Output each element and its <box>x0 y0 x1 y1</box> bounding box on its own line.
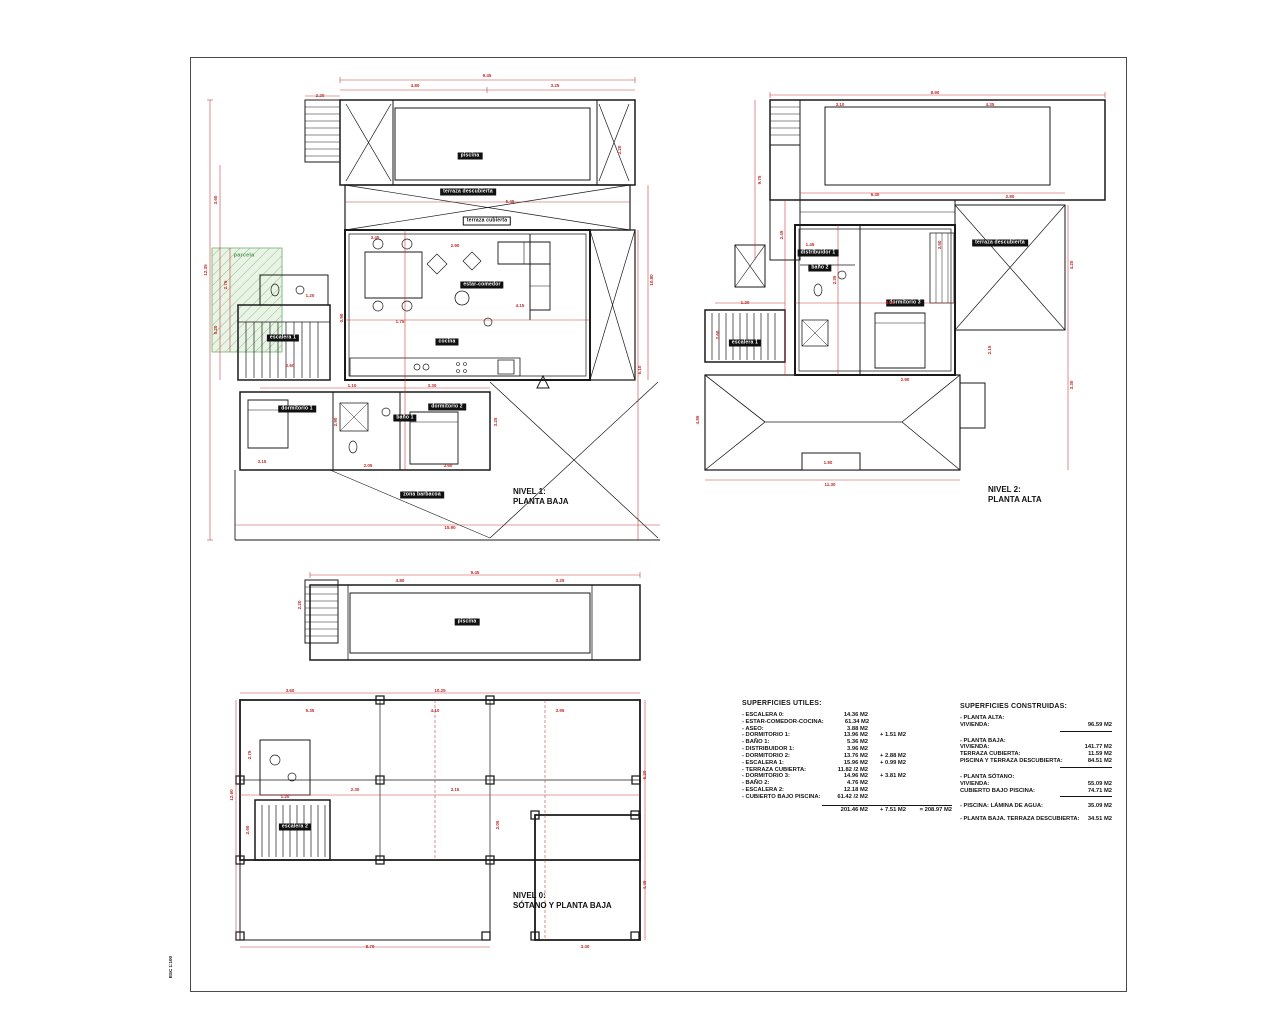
dimension-label: 2.60 <box>716 331 721 340</box>
construidas-group: - PISCINA: LÁMINA DE AGUA:35.09 M2 <box>960 803 1112 810</box>
dimension-label: 3.15 <box>258 460 267 465</box>
dimension-label: 2.20 <box>618 146 623 155</box>
sum-divider-line <box>1060 730 1112 732</box>
dimension-label: 4.10 <box>431 709 440 714</box>
dimension-label: 5.20 <box>214 326 219 335</box>
dimension-label: 2.90 <box>451 244 460 249</box>
dimension-label: 1.20 <box>281 795 290 800</box>
dimension-label: 2.60 <box>286 364 295 369</box>
dimension-label: 3.50 <box>938 241 943 250</box>
superficies-construidas-groups: - PLANTA ALTA:VIVIENDA:96.59 M2- PLANTA … <box>960 715 1112 823</box>
dimension-label: 2.05 <box>364 464 373 469</box>
utiles-row: - CUBIERTO BAJO PISCINA:61.42 /2 M2 <box>742 794 952 801</box>
utiles-row: - DISTRIBUIDOR 1:3.96 M2 <box>742 746 952 753</box>
construidas-row: TERRAZA CUBIERTA:11.59 M2 <box>960 751 1112 758</box>
dimension-label: 3.25 <box>494 418 499 427</box>
room-tag: piscina <box>458 153 483 160</box>
dimension-label: 4.15 <box>516 304 525 309</box>
dimension-label: 4.80 <box>396 579 405 584</box>
dimension-label: 1.80 <box>824 461 833 466</box>
dimension-label: 2.75 <box>248 751 253 760</box>
construidas-group-header: - PLANTA ALTA: <box>960 715 1112 722</box>
room-tag: estar-comedor <box>460 282 503 289</box>
construidas-row: - PLANTA BAJA. TERRAZA DESCUBIERTA:34.51… <box>960 816 1112 823</box>
dimension-label: 3.25 <box>551 84 560 89</box>
dimension-label: 3.60 <box>214 196 219 205</box>
superficies-utiles-title: SUPERFICIES UTILES: <box>742 700 952 707</box>
dimension-label: 12.60 <box>230 789 235 800</box>
room-tag: terraza descubierta <box>972 240 1028 247</box>
construidas-row: PISCINA Y TERRAZA DESCUBIERTA:84.51 M2 <box>960 758 1112 765</box>
dimension-label: 2.20 <box>316 94 325 99</box>
dimension-label: 2.30 <box>351 788 360 793</box>
room-tag: escalera 2 <box>279 824 311 831</box>
dimension-label: 1.45 <box>806 243 815 248</box>
room-tag: escalera 1 <box>267 335 299 342</box>
dimension-label: 10.80 <box>650 274 655 285</box>
dimension-label: 2.75 <box>224 281 229 290</box>
room-tag: terraza descubierta <box>440 189 496 196</box>
dimension-label: 2.05 <box>496 821 501 830</box>
dimension-label: 3.40 <box>581 945 590 950</box>
room-tag: parcela <box>234 253 255 259</box>
construidas-group-header: - PLANTA SÓTANO: <box>960 774 1112 781</box>
dimension-label: 6.10 <box>638 366 643 375</box>
dimension-label: 9.75 <box>758 176 763 185</box>
dimension-label: 2.45 <box>780 231 785 240</box>
construidas-group: - PLANTA BAJA. TERRAZA DESCUBIERTA:34.51… <box>960 816 1112 823</box>
dimension-label: 8.70 <box>366 945 375 950</box>
dimension-label: 10.25 <box>434 689 445 694</box>
dimension-label: 3.15 <box>451 788 460 793</box>
dimension-label: 3.05 <box>886 301 895 306</box>
dimension-label: 3.25 <box>556 579 565 584</box>
plot-stamp-text: ESC 1:100 <box>168 956 173 978</box>
dimension-label: 4.85 <box>696 416 701 425</box>
dimension-label: 6.40 <box>871 193 880 198</box>
room-tag: cocina <box>435 339 458 346</box>
construidas-row: VIVIENDA:96.59 M2 <box>960 722 1112 729</box>
construidas-group: - PLANTA SÓTANO:VIVIENDA:55.09 M2CUBIERT… <box>960 774 1112 797</box>
floor-plan-nivel-0: piscinaescalera 29.452.204.803.2510.253.… <box>230 565 650 955</box>
construidas-row: VIVIENDA:141.77 M2 <box>960 744 1112 751</box>
utiles-row: - ESCALERA 1:15.96 M2+ 0.99 M2 <box>742 760 952 767</box>
dimension-label: 15.90 <box>444 526 455 531</box>
room-tag: escalera 1 <box>729 340 761 347</box>
superficies-construidas-table: SUPERFICIES CONSTRUIDAS: - PLANTA ALTA:V… <box>960 703 1112 829</box>
dimension-label: 4.45 <box>643 881 648 890</box>
plan1-overlay: piscinaterraza descubiertaterraza cubier… <box>200 70 680 550</box>
construidas-group: - PLANTA BAJA:VIVIENDA:141.77 M2TERRAZA … <box>960 738 1112 768</box>
construidas-row: VIVIENDA:55.09 M2 <box>960 781 1112 788</box>
utiles-row: - DORMITORIO 1:13.96 M2+ 1.51 M2 <box>742 732 952 739</box>
dimension-label: 1.75 <box>396 320 405 325</box>
dimension-label: 3.30 <box>1070 381 1075 390</box>
utiles-row: - TERRAZA CUBIERTA:11.82 /2 M2 <box>742 767 952 774</box>
floor-plan-nivel-1: piscinaterraza descubiertaterraza cubier… <box>200 70 680 550</box>
dimension-label: 8.90 <box>931 91 940 96</box>
room-tag: distribuidor 1 <box>798 250 839 257</box>
superficies-utiles-rows: - ESCALERA 0:14.36 M2- ESTAR-COMEDOR-COC… <box>742 712 952 814</box>
plan-title: NIVEL 2: PLANTA ALTA <box>988 485 1042 504</box>
sum-divider-line <box>1060 795 1112 797</box>
dimension-label: 2.90 <box>334 418 339 427</box>
dimension-label: 1.20 <box>741 301 750 306</box>
plan2-overlay: terraza descubiertadormitorio 3baño 2dis… <box>690 85 1120 525</box>
dimension-label: 4.20 <box>1070 261 1075 270</box>
construidas-row: - PISCINA: LÁMINA DE AGUA:35.09 M2 <box>960 803 1112 810</box>
dimension-label: 2.80 <box>1006 195 1015 200</box>
utiles-row: - ESCALERA 0:14.36 M2 <box>742 712 952 719</box>
room-tag: dormitorio 1 <box>278 406 316 413</box>
superficies-utiles-table: SUPERFICIES UTILES: - ESCALERA 0:14.36 M… <box>742 700 952 814</box>
dimension-label: 4.80 <box>411 84 420 89</box>
dimension-label: 5.35 <box>306 709 315 714</box>
dimension-label: 1.20 <box>306 294 315 299</box>
dimension-label: 2.60 <box>246 826 251 835</box>
dimension-label: 3.95 <box>556 709 565 714</box>
utiles-row: - ESTAR-COMEDOR-COCINA:61.34 M2 <box>742 719 952 726</box>
utiles-row: - BAÑO 2:4.76 M2 <box>742 780 952 787</box>
dimension-label: 1.10 <box>348 384 357 389</box>
dimension-label: 2.35 <box>833 276 838 285</box>
dimension-label: 4.35 <box>986 103 995 108</box>
room-tag: terraza cubierta <box>463 217 511 226</box>
plan-title: NIVEL 1: PLANTA BAJA <box>513 487 569 506</box>
drawing-sheet: ESC 1:100 <box>0 0 1280 1024</box>
utiles-row: - ESCALERA 2:12.18 M2 <box>742 787 952 794</box>
room-tag: piscina <box>455 619 480 626</box>
dimension-label: 3.10 <box>836 103 845 108</box>
sum-divider-line <box>1060 766 1112 768</box>
dimension-label: 3.60 <box>286 689 295 694</box>
dimension-label: 11.30 <box>824 483 835 488</box>
dimension-label: 12.35 <box>204 264 209 275</box>
construidas-group-header: - PLANTA BAJA: <box>960 738 1112 745</box>
floor-plan-nivel-2: terraza descubiertadormitorio 3baño 2dis… <box>690 85 1120 525</box>
plan3-overlay: piscinaescalera 29.452.204.803.2510.253.… <box>230 565 650 955</box>
construidas-row: CUBIERTO BAJO PISCINA:74.71 M2 <box>960 788 1112 795</box>
dimension-label: 2.90 <box>901 378 910 383</box>
plan-title: NIVEL 0: SÓTANO Y PLANTA BAJA <box>513 891 612 910</box>
dimension-label: 5.45 <box>506 200 515 205</box>
room-tag: dormitorio 2 <box>428 404 466 411</box>
utiles-row: - DORMITORIO 3:14.96 M2+ 3.81 M2 <box>742 773 952 780</box>
dimension-label: 2.15 <box>988 346 993 355</box>
dimension-label: 3.30 <box>428 384 437 389</box>
utiles-row: - DORMITORIO 2:13.76 M2+ 2.88 M2 <box>742 753 952 760</box>
room-tag: zona barbacoa <box>400 492 444 499</box>
room-tag: baño 2 <box>808 265 831 272</box>
utiles-totals-row: 201.46 M2+ 7.51 M2= 208.97 M2 <box>742 805 952 814</box>
utiles-row: - BAÑO 1:5.36 M2 <box>742 739 952 746</box>
superficies-construidas-title: SUPERFICIES CONSTRUIDAS: <box>960 703 1112 710</box>
dimension-label: 6.20 <box>643 771 648 780</box>
room-tag: baño 1 <box>393 415 416 422</box>
dimension-label: 3.45 <box>371 236 380 241</box>
dimension-label: 3.60 <box>444 464 453 469</box>
construidas-group: - PLANTA ALTA:VIVIENDA:96.59 M2 <box>960 715 1112 732</box>
utiles-row: - ASEO:3.88 M2 <box>742 726 952 733</box>
dimension-label: 0.90 <box>340 314 345 323</box>
dimension-label: 9.45 <box>483 74 492 79</box>
dimension-label: 2.20 <box>298 601 303 610</box>
dimension-label: 9.45 <box>471 571 480 576</box>
